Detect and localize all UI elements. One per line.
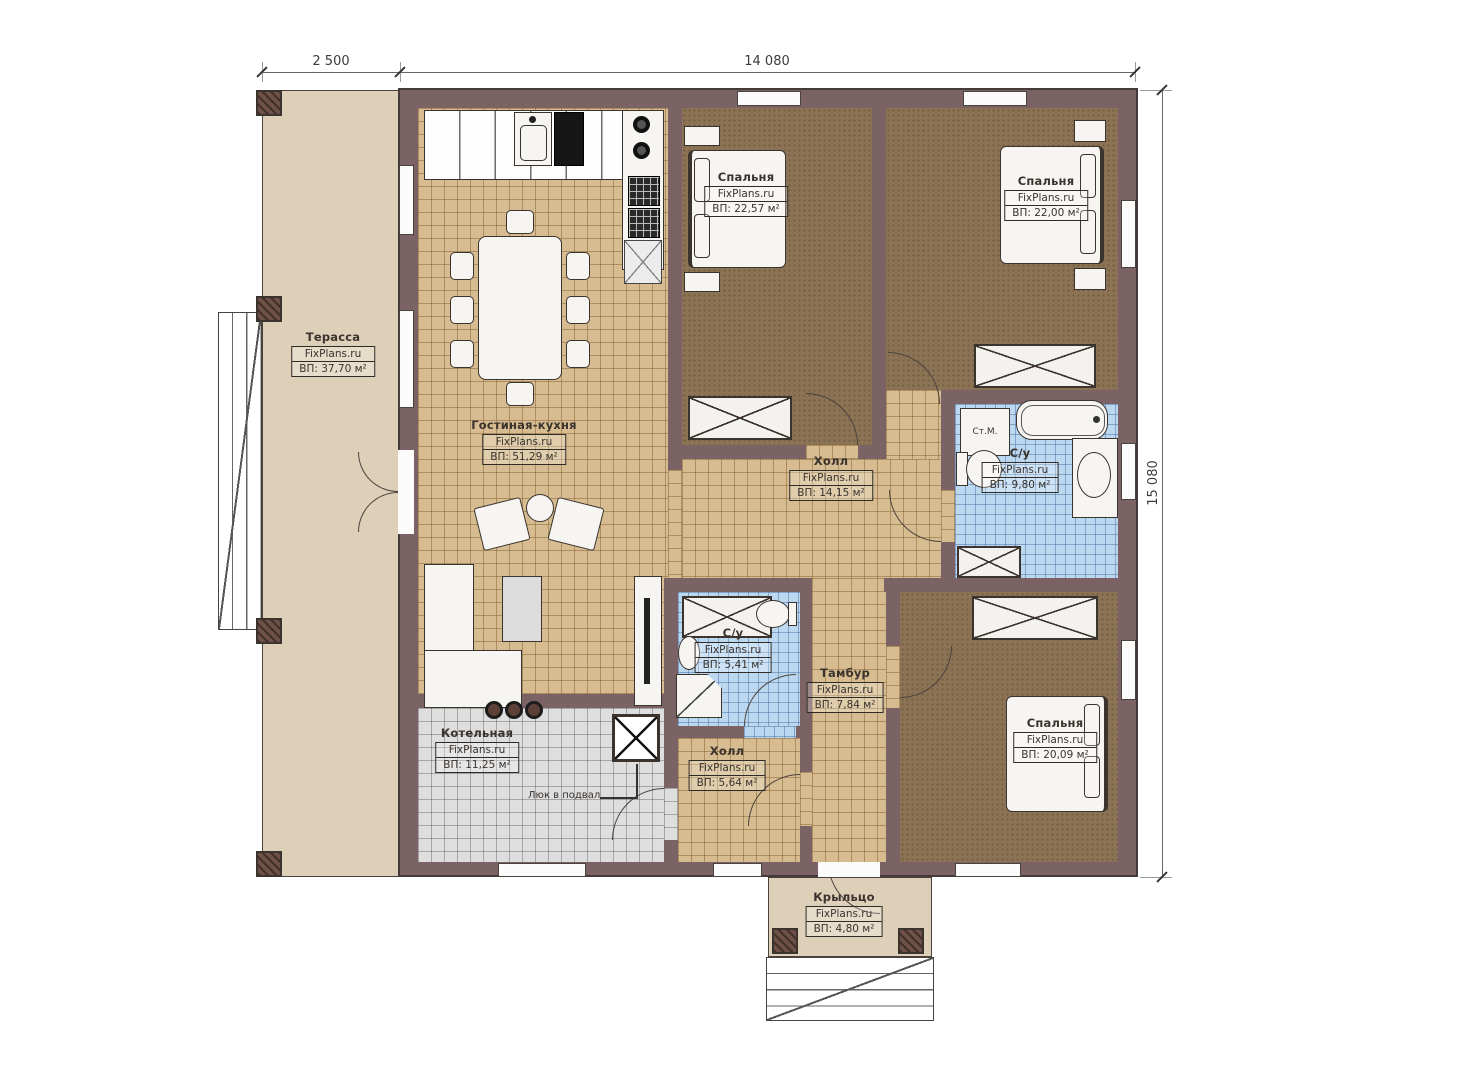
entrance-doorway: [818, 862, 880, 877]
dimension-label-house-height: 15 080: [1146, 460, 1161, 506]
watermark: FixPlans.ru: [807, 907, 882, 922]
bathroom-main-label: С/у FixPlans.ru ВП: 9,80 м²: [982, 446, 1059, 493]
window: [713, 863, 762, 877]
window: [1121, 200, 1136, 268]
wall-segment: [800, 826, 812, 862]
window: [1121, 443, 1136, 500]
toilet-symbol: [788, 602, 797, 626]
porch-post: [898, 928, 924, 954]
window: [1121, 640, 1136, 700]
living-label: Гостиная-кухня FixPlans.ru ВП: 51,29 м²: [471, 418, 576, 465]
dining-chair: [450, 340, 474, 368]
wall-segment: [678, 726, 744, 738]
terrace-post: [256, 618, 282, 644]
hatch-leader-line: [600, 797, 638, 799]
room-name: Тамбур: [807, 666, 884, 680]
nightstand: [684, 272, 720, 292]
stove-burner: [633, 142, 650, 159]
room-name: С/у: [695, 626, 772, 640]
room-name: Гостиная-кухня: [471, 418, 576, 432]
hatch-leader-line: [636, 764, 638, 798]
coffee-machine: [554, 112, 584, 166]
doorway-floor: [941, 490, 955, 542]
terrace-label: Терасса FixPlans.ru ВП: 37,70 м²: [291, 330, 375, 377]
nightstand: [1074, 268, 1106, 290]
dining-chair: [506, 382, 534, 406]
room-area: ВП: 20,09 м²: [1014, 748, 1096, 762]
wall-segment: [941, 390, 955, 490]
terrace-stairs: [218, 312, 262, 630]
dining-table: [478, 236, 562, 380]
bathtub-symbol: [1016, 400, 1108, 440]
watermark: FixPlans.ru: [696, 643, 771, 658]
pillow: [694, 214, 710, 258]
oven: [628, 208, 660, 238]
room-area: ВП: 22,00 м²: [1005, 206, 1087, 220]
dining-chair: [506, 210, 534, 234]
bedroom-top-right-label: Спальня FixPlans.ru ВП: 22,00 м²: [1004, 174, 1088, 221]
room-name: Холл: [689, 744, 766, 758]
hall-main-label: Холл FixPlans.ru ВП: 14,15 м²: [789, 454, 873, 501]
room-vestibule: [812, 578, 886, 862]
doorway-floor: [800, 772, 812, 826]
watermark: FixPlans.ru: [483, 435, 565, 450]
room-name: Терасса: [291, 330, 375, 344]
nightstand: [684, 126, 720, 146]
watermark: FixPlans.ru: [690, 761, 765, 776]
washing-machine-label: Ст.М.: [972, 427, 997, 437]
porch-stairs: [766, 957, 934, 1021]
stove-burner: [633, 116, 650, 133]
vestibule-label: Тамбур FixPlans.ru ВП: 7,84 м²: [807, 666, 884, 713]
dining-chair: [450, 296, 474, 324]
room-area: ВП: 9,80 м²: [983, 478, 1058, 492]
dimension-line-top: [262, 72, 1135, 73]
dining-chair: [566, 296, 590, 324]
room-name: С/у: [982, 446, 1059, 460]
doorway-floor: [668, 470, 682, 578]
basement-hatch-note: Люк в подвал: [528, 790, 600, 801]
hall-small-label: Холл FixPlans.ru ВП: 5,64 м²: [689, 744, 766, 791]
wall-segment: [886, 592, 900, 646]
room-area: ВП: 37,70 м²: [292, 362, 374, 376]
porch-label: Крыльцо FixPlans.ru ВП: 4,80 м²: [806, 890, 883, 937]
terrace-post: [256, 296, 282, 322]
watermark: FixPlans.ru: [1014, 733, 1096, 748]
bathtub-drain: [1093, 416, 1100, 423]
porch-post: [772, 928, 798, 954]
kitchen-sink: [514, 112, 552, 166]
wall-segment: [682, 445, 806, 459]
window: [399, 165, 414, 235]
wardrobe-symbol: [688, 396, 792, 440]
window: [963, 91, 1027, 106]
tv-screen: [644, 598, 650, 684]
window: [737, 91, 801, 106]
bathroom-cabinet: [957, 546, 1021, 578]
window: [498, 863, 586, 877]
wall-segment: [941, 542, 955, 578]
dimension-label-house-width: 14 080: [744, 54, 790, 69]
doorway-floor: [664, 788, 678, 840]
room-area: ВП: 7,84 м²: [808, 698, 883, 712]
terrace-doorway: [398, 450, 414, 534]
watermark: FixPlans.ru: [292, 347, 374, 362]
watermark: FixPlans.ru: [1005, 191, 1087, 206]
wall-segment: [884, 578, 1118, 592]
room-area: ВП: 5,41 м²: [696, 658, 771, 672]
dining-chair: [450, 252, 474, 280]
doorway-floor: [744, 726, 796, 738]
dishwasher: [624, 240, 662, 284]
room-name: Спальня: [1004, 174, 1088, 188]
wall-segment: [872, 108, 886, 459]
dimension-label-terrace-width: 2 500: [312, 54, 349, 69]
round-side-table: [526, 494, 554, 522]
watermark: FixPlans.ru: [983, 463, 1058, 478]
wardrobe-symbol: [972, 596, 1098, 640]
bedroom-bottom-label: Спальня FixPlans.ru ВП: 20,09 м²: [1013, 716, 1097, 763]
room-name: Спальня: [1013, 716, 1097, 730]
terrace-post: [256, 90, 282, 116]
room-area: ВП: 5,64 м²: [690, 776, 765, 790]
room-name: Крыльцо: [806, 890, 883, 904]
sofa: [424, 650, 522, 708]
coffee-table: [502, 576, 542, 642]
boiler-label: Котельная FixPlans.ru ВП: 11,25 м²: [435, 726, 519, 773]
room-name: Котельная: [435, 726, 519, 740]
window: [955, 863, 1021, 877]
wall-segment: [664, 707, 678, 788]
room-name: Холл: [789, 454, 873, 468]
bedroom-top-left-label: Спальня FixPlans.ru ВП: 22,57 м²: [704, 170, 788, 217]
bathroom-small-label: С/у FixPlans.ru ВП: 5,41 м²: [695, 626, 772, 673]
wall-segment: [886, 708, 900, 862]
sink-basin: [520, 125, 547, 161]
boiler-equipment: [525, 701, 543, 719]
wall-segment: [668, 108, 682, 470]
wall-segment: [668, 578, 812, 592]
room-area: ВП: 11,25 м²: [436, 758, 518, 772]
room-area: ВП: 22,57 м²: [705, 202, 787, 216]
dimension-extension: [1140, 877, 1172, 878]
room-area: ВП: 51,29 м²: [483, 450, 565, 464]
boiler-equipment: [505, 701, 523, 719]
watermark: FixPlans.ru: [790, 471, 872, 486]
dimension-extension: [1140, 90, 1172, 91]
wardrobe-symbol: [974, 344, 1096, 388]
doorway-floor: [886, 646, 900, 708]
dining-chair: [566, 340, 590, 368]
dining-chair: [566, 252, 590, 280]
room-name: Спальня: [704, 170, 788, 184]
watermark: FixPlans.ru: [436, 743, 518, 758]
oven: [628, 176, 660, 206]
window: [399, 310, 414, 408]
dimension-line-right: [1162, 90, 1163, 877]
room-area: ВП: 14,15 м²: [790, 486, 872, 500]
nightstand: [1074, 120, 1106, 142]
wall-segment: [664, 840, 678, 862]
boiler-equipment: [485, 701, 503, 719]
sink-faucet: [529, 116, 536, 123]
room-area: ВП: 4,80 м²: [807, 922, 882, 936]
wall-segment: [664, 578, 678, 707]
basement-hatch: [612, 714, 660, 762]
watermark: FixPlans.ru: [705, 187, 787, 202]
floor-plan: 2 500 14 080 15 080: [0, 0, 1473, 1080]
washbasin-symbol: [1077, 452, 1111, 498]
terrace-post: [256, 851, 282, 877]
watermark: FixPlans.ru: [808, 683, 883, 698]
toilet-bowl: [756, 600, 790, 628]
